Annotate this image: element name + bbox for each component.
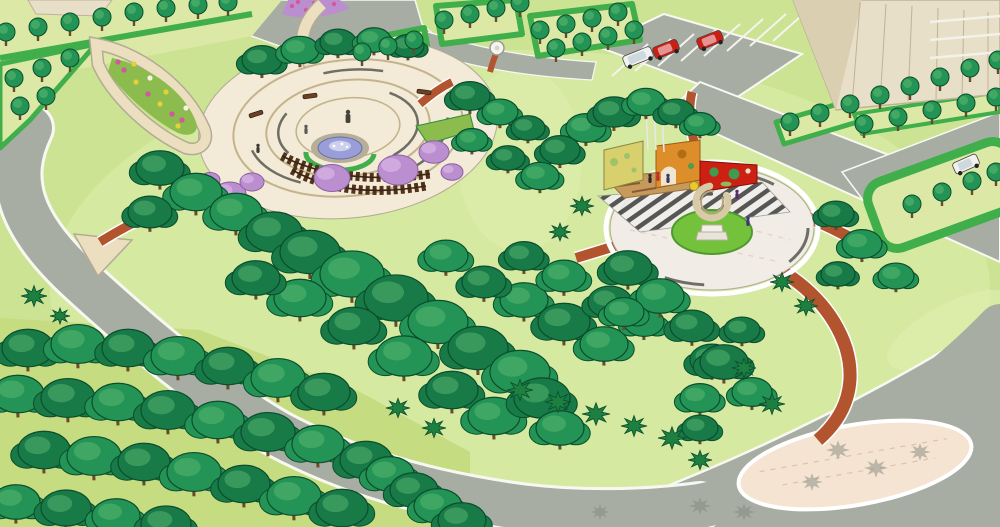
statue [346, 110, 351, 123]
yellow-ball-sculpture [690, 182, 699, 191]
park-aerial-rendering: Aerial 3D landscape rendering of an elli… [0, 0, 1000, 527]
